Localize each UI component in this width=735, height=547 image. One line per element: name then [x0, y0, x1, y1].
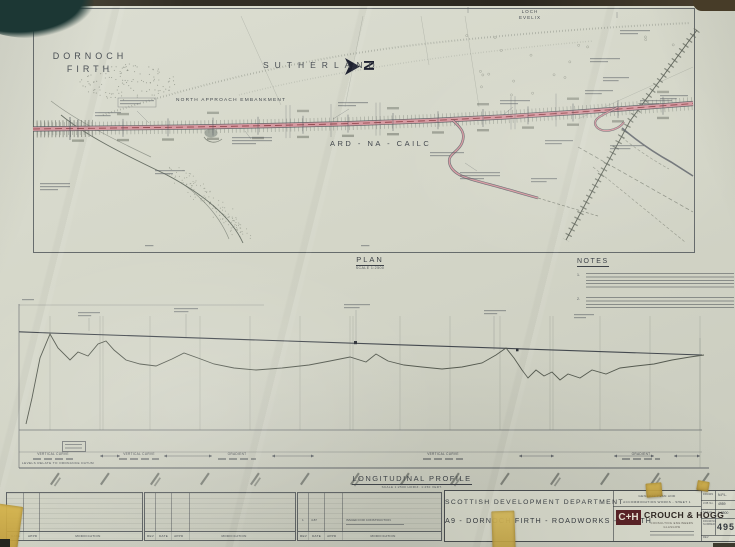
- revision-header: REV DATE APPD MODIFICATION: [145, 531, 295, 540]
- photo-top-edge: [0, 0, 735, 6]
- revision-entry-text: ISSUED FOR CONSTRUCTION: [346, 518, 391, 522]
- field-rev-label: REV: [703, 536, 709, 539]
- revision-entry-rev: 1: [302, 518, 304, 522]
- plan-caption-text: PLAN: [356, 255, 384, 266]
- datum-note: LEVELS RELATE TO ORDNANCE DATUM: [22, 461, 94, 465]
- plan-caption-scale: SCALE 1:2500: [327, 266, 413, 270]
- tape-bottom-middle: [491, 511, 515, 547]
- profile-caption: LONGITUDINAL PROFILE SCALE 1:2500 HORIZ.…: [337, 474, 487, 489]
- ann-label: GRADIENT: [210, 452, 264, 456]
- revision-panel-1: DATE APPD MODIFICATION: [6, 492, 143, 541]
- dornoch-line1: DORNOCH: [40, 50, 140, 63]
- rev-h-mod: MODIFICATION: [370, 534, 395, 538]
- field-number-value: 4959: [717, 522, 735, 532]
- photo-top-right-corner: [693, 0, 735, 11]
- region-label-sutherland: SUTHERLAND: [263, 60, 381, 70]
- revision-panel-2: REV DATE APPD MODIFICATION: [144, 492, 296, 541]
- notes-heading: NOTES: [577, 258, 609, 267]
- profile-caption-scale: SCALE 1:2500 HORIZ. 1:250 VERT.: [337, 485, 487, 489]
- firm-subtitle-2: GLASGOW: [644, 526, 700, 529]
- revision-header: DATE APPD MODIFICATION: [7, 531, 142, 540]
- plan-linework: N: [33, 7, 693, 252]
- rev-h-mod: MODIFICATION: [221, 534, 246, 538]
- firm-address: [650, 531, 694, 536]
- ann-label: VERTICAL CURVE: [110, 452, 168, 456]
- loch-line2: EVELIX: [513, 15, 547, 21]
- title-project: A9 - DORNOCH FIRTH - ROADWORKS - NORTH: [445, 516, 613, 525]
- field-job-value: 4959: [718, 502, 726, 506]
- dornoch-line2: FIRTH: [40, 63, 140, 76]
- title-works-line2: ACCOMMODATION WORKS - SHEET 1: [613, 500, 701, 504]
- rev-h-rev: REV: [147, 534, 154, 538]
- rev-h-appd: APPD: [28, 534, 37, 538]
- field-job-label: JOB No.: [703, 502, 714, 505]
- field-scale-label: SCALE: [703, 511, 712, 514]
- profile-linework: [14, 298, 714, 490]
- ann-gradient-2: GRADIENT: [614, 452, 668, 460]
- firm-subtitle-1: CONSULTING ENGINEERS: [644, 522, 700, 525]
- photo-bottom-right-sliver: [713, 543, 735, 547]
- rev-h-mod: MODIFICATION: [75, 534, 100, 538]
- revision-header: REV DATE APPD MODIFICATION: [298, 531, 441, 540]
- profile-caption-text: LONGITUDINAL PROFILE: [352, 474, 471, 485]
- rev-h-date: DATE: [159, 534, 168, 538]
- region-label-dornoch-firth: DORNOCH FIRTH: [40, 50, 140, 76]
- ann-label: VERTICAL CURVE: [24, 452, 82, 456]
- crouch-hogg-logo: C+H: [616, 510, 641, 525]
- field-drawn-label: DRAWN: [703, 493, 713, 496]
- title-block: SCOTTISH DEVELOPMENT DEPARTMENT A9 - DOR…: [444, 490, 735, 542]
- ann-label: VERTICAL CURVE: [414, 452, 472, 456]
- tape-title-right: [696, 480, 710, 492]
- field-scale-value: 1:2500: [718, 511, 728, 515]
- ann-gradient-1: GRADIENT: [210, 452, 264, 460]
- note-number-1: 1.: [577, 273, 580, 277]
- tape-title-top: [645, 482, 662, 497]
- field-number-label: DRAWING NUMBER: [703, 520, 715, 526]
- photo-bottom-left-corner: [0, 539, 10, 547]
- ann-vertical-curve-3: VERTICAL CURVE: [414, 452, 472, 460]
- revision-panel-3: 1 4.87 ISSUED FOR CONSTRUCTION REV DATE …: [297, 492, 442, 541]
- label-north-approach-embankment: NORTH APPROACH EMBANKMENT: [176, 98, 286, 103]
- revision-entry-extra: [346, 524, 404, 527]
- title-department: SCOTTISH DEVELOPMENT DEPARTMENT: [445, 499, 613, 506]
- ann-vertical-curve-2: VERTICAL CURVE: [110, 452, 168, 460]
- rev-h-rev: REV: [300, 534, 307, 538]
- rev-h-appd: APPD: [327, 534, 336, 538]
- revision-entry-date: 4.87: [311, 518, 317, 522]
- plan-caption: PLAN SCALE 1:2500: [327, 255, 413, 270]
- note-1-text: [586, 273, 734, 290]
- rev-h-appd: APPD: [174, 534, 183, 538]
- region-label-loch-evelix: LOCH EVELIX: [513, 9, 547, 21]
- ann-vertical-curve-1: VERTICAL CURVE: [24, 452, 82, 460]
- field-drawn-value: N.P.L.: [718, 493, 727, 497]
- label-ard-na-cailc: ARD - NA - CAILC: [330, 139, 431, 148]
- drawing-photo: N DORNOCH FIRTH SUTHERLAND LOCH EVELIX N…: [0, 0, 735, 547]
- rev-h-date: DATE: [312, 534, 321, 538]
- ann-label: GRADIENT: [614, 452, 668, 456]
- ann-gradient-box: [62, 441, 86, 452]
